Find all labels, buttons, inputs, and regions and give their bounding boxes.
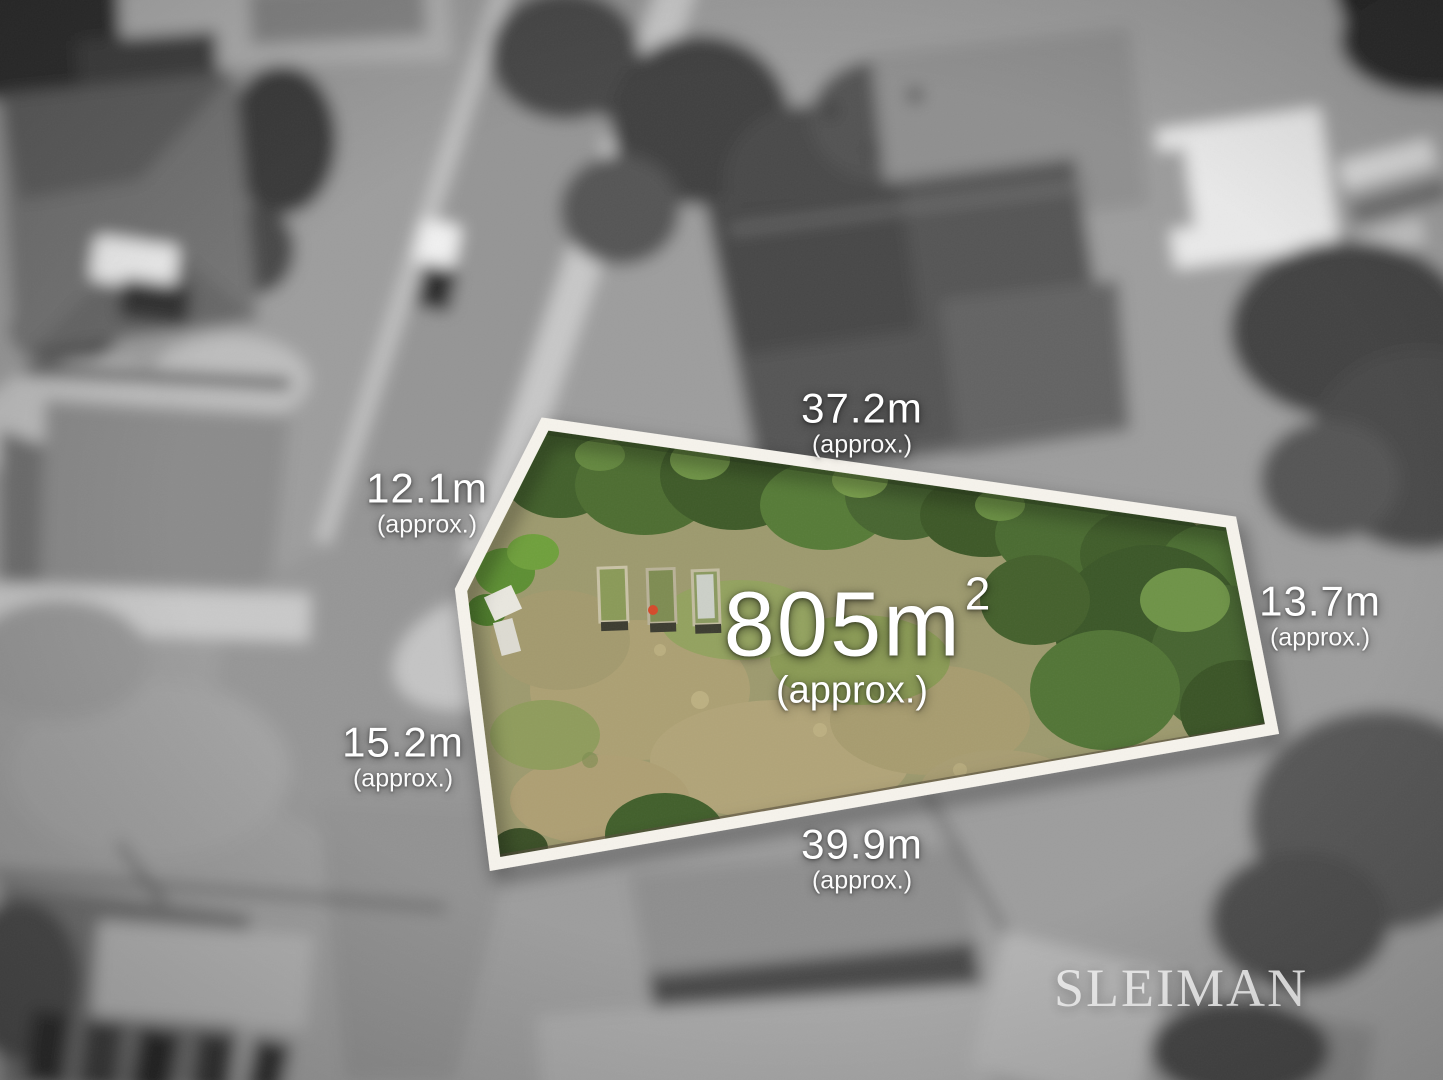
grain-overlay [0,0,1443,1080]
lot-area-approx: (approx.) [776,674,928,709]
side-length-bottom-approx: (approx.) [812,869,912,892]
side-length-bottom-value: 39.9m [801,826,923,865]
side-length-top: 37.2m (approx.) [801,390,923,457]
side-length-left-lower: 15.2m (approx.) [342,724,464,791]
side-length-left-lower-value: 15.2m [342,724,464,763]
side-length-right-value: 13.7m [1259,583,1381,622]
brand-logo: SLEIMAN [1054,957,1308,1019]
side-length-left-lower-approx: (approx.) [353,767,453,790]
lot-area-superscript: 2 [965,573,993,615]
property-aerial-screenshot: 37.2m (approx.) 12.1m (approx.) 13.7m (a… [0,0,1443,1080]
side-length-left-upper-value: 12.1m [366,470,488,509]
side-length-left-upper-approx: (approx.) [377,513,477,536]
side-length-top-value: 37.2m [801,390,923,429]
lot-area-value: 805m [724,583,962,668]
side-length-bottom: 39.9m (approx.) [801,826,923,893]
lot-area: 805m2 [724,583,993,668]
side-length-left-upper: 12.1m (approx.) [366,470,488,537]
side-length-top-approx: (approx.) [812,433,912,456]
side-length-right: 13.7m (approx.) [1259,583,1381,650]
side-length-right-approx: (approx.) [1270,626,1370,649]
aerial-photo [0,0,1443,1080]
